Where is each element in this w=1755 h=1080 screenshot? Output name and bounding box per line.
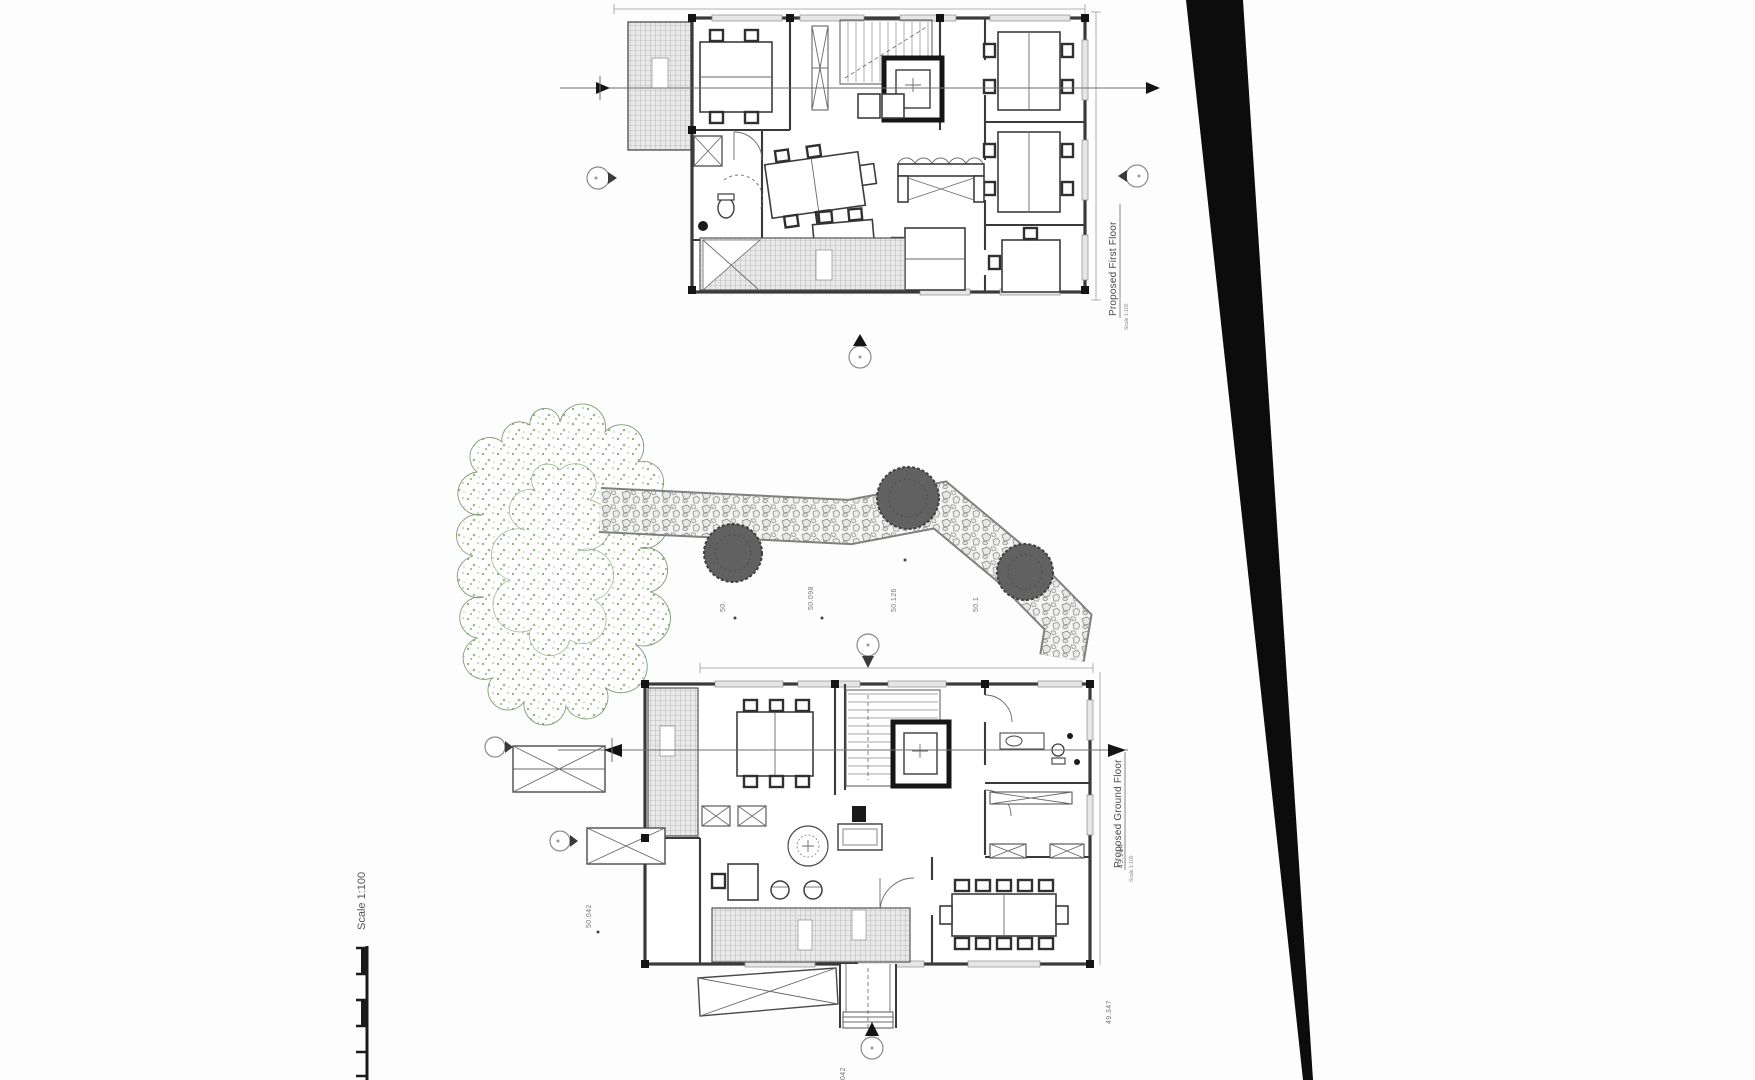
desk-right-1 bbox=[984, 32, 1073, 110]
entry-porch bbox=[840, 964, 896, 1030]
grid-marker-right bbox=[1118, 165, 1148, 187]
bush-3 bbox=[997, 544, 1053, 600]
first-floor-scale-note: Scale 1:100 bbox=[1124, 303, 1130, 330]
conference-table bbox=[940, 880, 1068, 949]
marker-top bbox=[857, 634, 879, 668]
level-label: 50.042 bbox=[586, 904, 593, 928]
dining-table bbox=[737, 700, 813, 787]
level-label: 49.144 bbox=[1118, 844, 1125, 868]
scale-bar-label: Scale 1:100 bbox=[356, 872, 368, 930]
ground-floor-side-terrace bbox=[648, 688, 698, 836]
deck-left bbox=[513, 746, 605, 792]
grid-marker-left bbox=[587, 167, 617, 189]
desk-top-left bbox=[700, 30, 772, 123]
ground-floor-scale-note: Scale 1:100 bbox=[1129, 855, 1135, 882]
round-rug bbox=[788, 826, 828, 866]
ramp-left bbox=[587, 828, 665, 864]
level-label: 49.347 bbox=[1106, 1000, 1113, 1024]
site-plan-drawing: Proposed First Floor Scale 1:100 bbox=[0, 0, 1755, 1080]
level-label: 50. bbox=[720, 601, 727, 612]
level-label: 50.1 bbox=[973, 597, 980, 612]
desk-right-2 bbox=[984, 132, 1073, 212]
scanned-drawing-page: Proposed First Floor Scale 1:100 bbox=[0, 0, 1755, 1080]
page-edge-line bbox=[1186, 0, 1313, 1080]
ground-floor-elevator bbox=[893, 722, 949, 786]
level-label: 50.098 bbox=[808, 586, 815, 610]
first-floor-title: Proposed First Floor bbox=[1108, 221, 1119, 316]
ramp-bottom bbox=[698, 968, 838, 1016]
bush-2 bbox=[877, 467, 939, 529]
bush-1 bbox=[704, 524, 762, 582]
level-label: 50.126 bbox=[891, 588, 898, 612]
tree-canopy bbox=[457, 404, 671, 725]
scale-bar: Scale 1:100 bbox=[356, 872, 368, 1080]
marker-left bbox=[485, 737, 513, 757]
level-label: 042 bbox=[840, 1067, 847, 1080]
first-floor-plan: Proposed First Floor Scale 1:100 bbox=[560, 4, 1160, 368]
north-marker-first-floor bbox=[849, 334, 871, 368]
marker-left-lower bbox=[550, 831, 578, 851]
